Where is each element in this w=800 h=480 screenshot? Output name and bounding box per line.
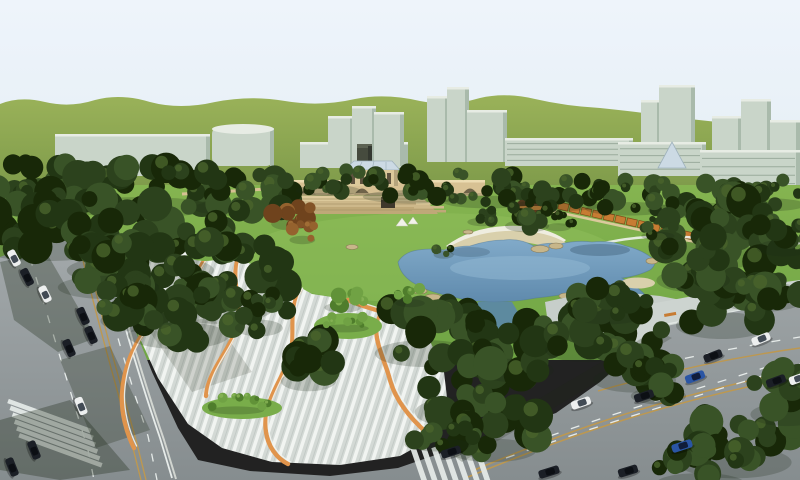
park-render-canvas [0,0,800,480]
building [447,87,469,162]
building [618,142,706,176]
building [427,96,449,162]
building [505,138,633,166]
park-render-stage [0,0,800,480]
building [467,110,507,162]
pond-reflection [570,244,630,256]
pond-glint [450,256,590,280]
pond-reflection [450,247,490,257]
building [328,116,354,166]
building [212,124,274,166]
building [374,112,404,166]
